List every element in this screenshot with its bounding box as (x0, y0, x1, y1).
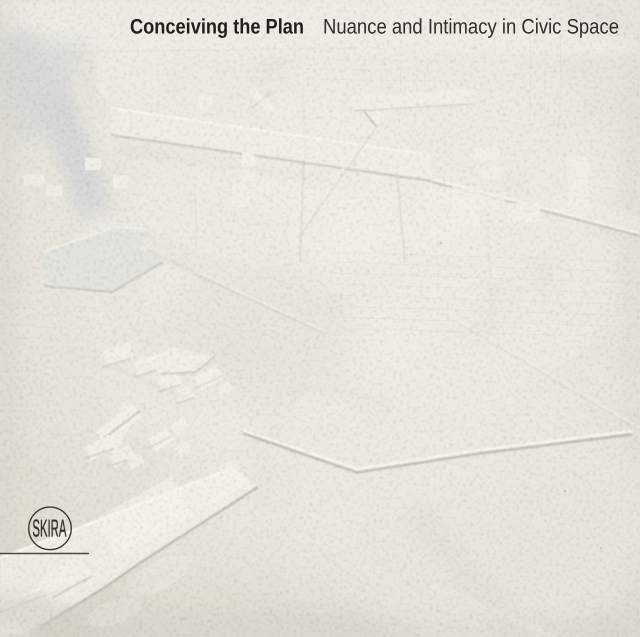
svg-text:Conceiving the Plan: Conceiving the Plan (130, 16, 304, 39)
svg-text:Nuance and Intimacy in Civic S: Nuance and Intimacy in Civic Space (323, 16, 619, 39)
svg-text:SKIRA: SKIRA (32, 516, 66, 543)
